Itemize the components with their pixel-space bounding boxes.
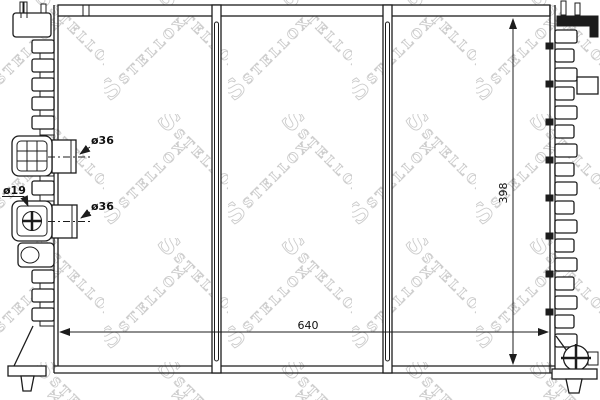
dim-width-label: 640 — [298, 319, 319, 332]
left-top-pin-icon — [20, 2, 23, 14]
divider-left — [212, 5, 221, 373]
watermark-layer — [0, 0, 600, 400]
lower-port-label: ø36 — [91, 200, 114, 213]
left-tank-header — [13, 13, 51, 37]
drawing-canvas: S STELLOX S STELLOX — [0, 0, 600, 400]
upper-port-label: ø36 — [91, 134, 114, 147]
divider-right — [383, 5, 392, 373]
drain-label: ø19 — [3, 184, 26, 197]
right-side-tab — [577, 77, 598, 94]
top-header-bar — [58, 5, 550, 16]
dim-height-label: 398 — [497, 183, 510, 204]
radiator-technical-drawing: S STELLOX S STELLOX — [0, 0, 600, 400]
mounting-hole-icon — [21, 247, 39, 263]
